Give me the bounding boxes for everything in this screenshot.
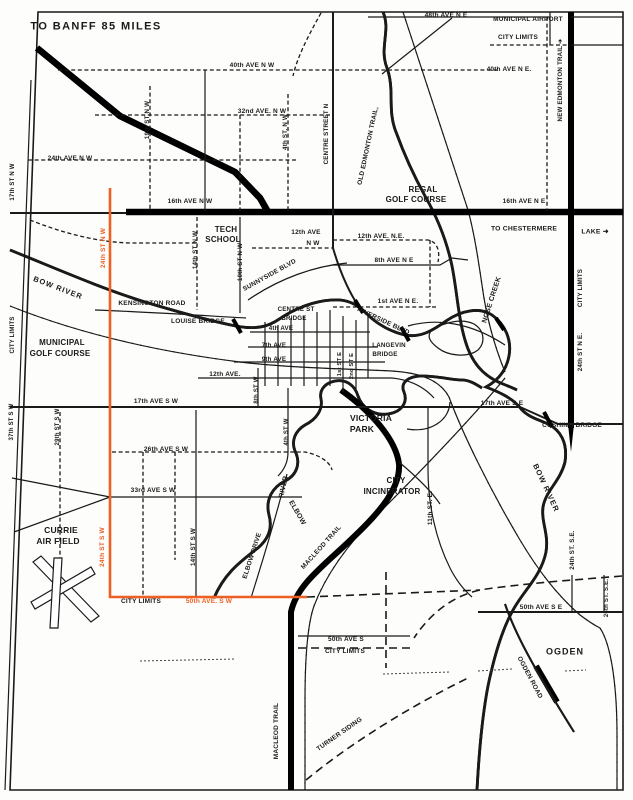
label-1st-ave-ne: 1st AVE N E. <box>378 299 419 306</box>
label-turner-siding: TURNER SIDING <box>316 717 364 753</box>
label-municipal-golf-2: GOLF COURSE <box>30 350 91 358</box>
label-1st-st-e: 1st ST E <box>338 352 344 376</box>
label-17th-ave-sw: 17th AVE S W <box>134 399 178 406</box>
label-33rd-ave-sw: 33rd AVE S W <box>131 488 176 495</box>
label-city-incinerator-1: CITY <box>386 477 405 485</box>
label-17th-ave-se: 17th AVE S E <box>481 401 524 408</box>
label-12th-ave-nw-2: N W <box>306 241 319 248</box>
label-city-limits-sw: CITY LIMITS <box>121 599 161 606</box>
label-victoria-park-1: VICTORIA <box>350 414 392 423</box>
label-4th-st-w: 4th ST W <box>284 418 290 445</box>
label-24th-st-sw: 24th ST S W <box>100 527 107 567</box>
label-37th-st-sw: 37th ST S W <box>9 404 15 441</box>
label-macleod-trail-s: MACLEOD TRAIL <box>274 703 281 759</box>
map-label-layer: TO BANFF 85 MILES48th AVE N EMUNICIPAL A… <box>0 0 633 800</box>
label-centre-st-bridge-2: BRIDGE <box>281 316 306 322</box>
label-8th-ave-ne: 8th AVE N E <box>374 258 413 265</box>
label-victoria-park-2: PARK <box>350 425 374 434</box>
label-municipal-golf-1: MUNICIPAL <box>39 339 85 347</box>
label-12th-ave: 12th AVE. <box>209 372 240 379</box>
label-municipal-airport: MUNICIPAL AIRPORT <box>493 17 563 24</box>
label-4th-st-nw: 4th ST. N W <box>283 114 289 150</box>
label-24th-ave-nw: 24th AVE N W <box>48 156 93 163</box>
label-2nd-st-e: 2nd ST E <box>350 353 356 379</box>
label-9th-ave: 9th AVE <box>262 357 286 363</box>
label-city-limits-ne: CITY LIMITS <box>578 269 584 307</box>
label-19th-st-nw: 19th ST N W <box>145 101 151 139</box>
label-48th-ave-ne: 48th AVE N E <box>425 13 468 20</box>
label-elbow-river-2: ELBOW <box>287 500 307 527</box>
label-macleod-trail-diag: MACLEOD TRAIL <box>301 525 344 571</box>
label-14th-st-sw: 14th ST S W <box>191 528 197 566</box>
label-11th-st-e: 11th ST. E. <box>428 491 435 525</box>
label-tech-school-1: TECH <box>215 226 238 234</box>
label-17th-st-nw: 17th ST N W <box>10 163 16 200</box>
label-elbow-drive: ELBOW DRIVE <box>242 532 263 580</box>
label-old-edmonton-trail: OLD EDMONTON TRAIL, <box>358 106 381 185</box>
label-regal-golf-1: REGAL <box>409 186 438 194</box>
label-centre-street-n: CENTRE STREET N <box>324 104 330 165</box>
label-bow-river-w: BOW RIVER <box>32 275 84 301</box>
label-40th-ave-nw: 40th AVE N W <box>230 63 275 70</box>
label-50th-ave-sw: 50th AVE. S W <box>186 599 232 606</box>
label-4th-ave: 4th AVE <box>269 326 293 332</box>
label-ogden-road: OGDEN ROAD <box>515 656 543 700</box>
label-24th-st-se: 24th ST. S.E. <box>570 530 576 569</box>
label-to-chestermere: TO CHESTERMERE <box>491 227 557 234</box>
label-bow-river-e: BOW RIVER <box>532 463 561 514</box>
label-26th-ave-sw: 26th AVE S W <box>144 447 188 454</box>
label-10th-st-nw: 10th ST N W <box>238 243 244 281</box>
label-16th-ave-nw: 16th AVE N W <box>168 199 213 206</box>
label-louise-bridge: LOUISE BRIDGE <box>171 319 225 326</box>
label-50th-ave-se: 50th AVE S E <box>520 605 563 612</box>
label-32nd-ave-nw: 32nd AVE. N W <box>238 109 286 116</box>
label-12th-ave-nw-1: 12th AVE <box>291 230 320 237</box>
label-new-edmonton-trail: NEW EDMONTON TRAIL ➔ <box>558 39 564 122</box>
label-city-limits-w: CITY LIMITS <box>10 316 16 353</box>
map-root: TO BANFF 85 MILES48th AVE N EMUNICIPAL A… <box>0 0 633 800</box>
label-14th-st-nw: 14th ST N W <box>193 231 199 269</box>
label-ogden: OGDEN <box>546 648 584 657</box>
label-8th-st-w: 8th ST W <box>254 376 260 403</box>
label-langevin-bridge-1: LANGEVIN <box>372 343 406 349</box>
label-regal-golf-2: GOLF COURSE <box>386 196 447 204</box>
label-centre-st-bridge-1: CENTRE ST <box>278 307 315 313</box>
label-cushing-bridge: CUSHING BRIDGE <box>542 423 602 430</box>
label-tech-school-2: SCHOOL <box>205 236 240 244</box>
label-lake: LAKE ➜ <box>581 230 608 237</box>
label-12th-ave-ne: 12th AVE. N.E. <box>358 234 405 241</box>
label-to-banff: TO BANFF 85 MILES <box>30 22 161 33</box>
label-40th-ave-ne: 40th AVE N E. <box>487 67 532 74</box>
label-26th-st-se: 26th ST. S.E. <box>604 579 610 617</box>
label-city-limits-airport: CITY LIMITS <box>498 35 538 42</box>
label-currie-1: CURRIE <box>44 526 78 535</box>
label-7th-ave: 7th AVE <box>262 343 286 349</box>
label-currie-2: AIR FIELD <box>36 537 79 546</box>
label-kensington-road: KENSINGTON ROAD <box>118 301 185 308</box>
label-29th-st-sw: 29th ST S W <box>55 409 61 446</box>
label-elbow-river-1: RIVER <box>278 475 290 498</box>
label-16th-ave-ne: 16th AVE N E <box>503 199 546 206</box>
label-24th-st-ne: 24th ST N E. <box>578 333 584 372</box>
label-langevin-bridge-2: BRIDGE <box>372 352 397 358</box>
label-24th-st-nw: 24th ST N W <box>101 228 108 268</box>
label-nose-creek: NOSE CREEK <box>481 276 503 324</box>
label-50th-ave-s: 50th AVE S <box>328 637 364 644</box>
label-city-limits-s: CITY LIMITS <box>325 649 365 656</box>
label-sunnyside-blvd: SUNNYSIDE BLVD <box>242 259 297 294</box>
label-riverside-blvd: RIVERSIDE BLVD <box>356 307 410 337</box>
label-city-incinerator-2: INCINERATOR <box>363 488 420 496</box>
